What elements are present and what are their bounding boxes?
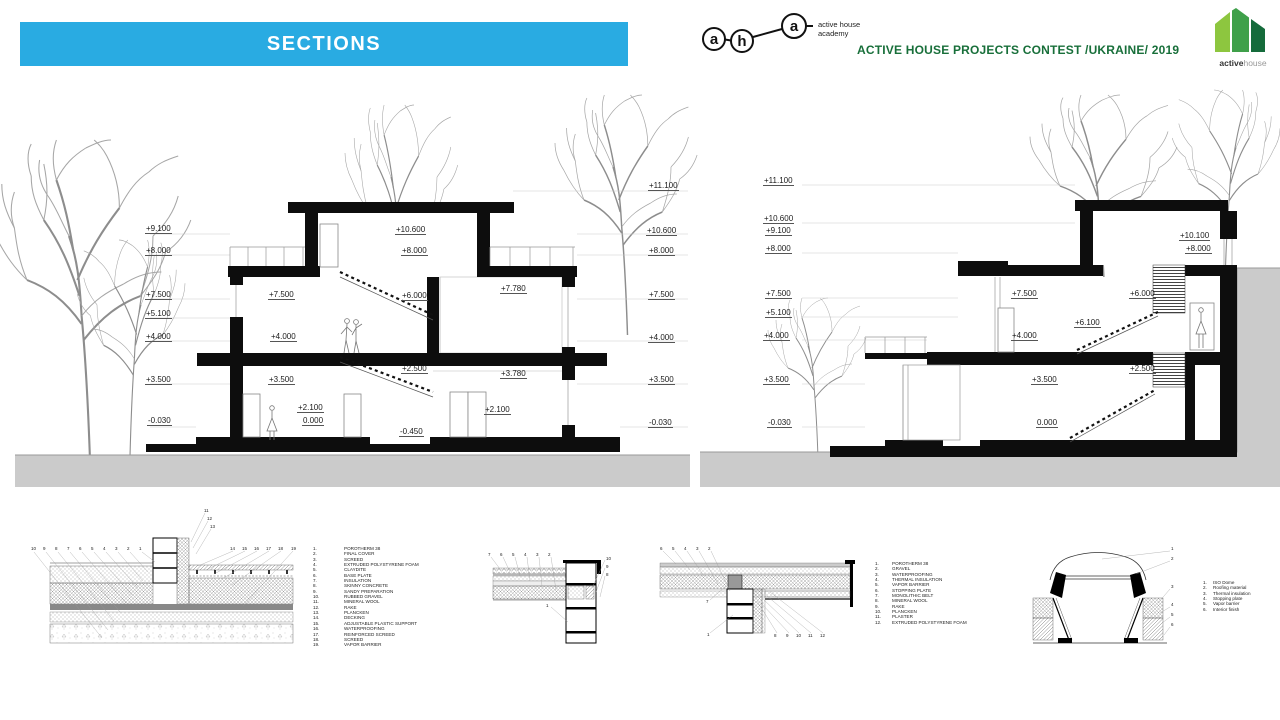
academy-line2: academy <box>818 29 860 38</box>
legend-item-text: EXTRUDED POLYSTYRENE FOAM <box>892 620 967 625</box>
legend-floor-detail: 1.POROTHERM 382.FINAL COVER3.SCREED4.EXT… <box>313 546 448 648</box>
legend-item: 12.EXTRUDED POLYSTYRENE FOAM <box>875 620 995 625</box>
legend-item-text: Interior finish <box>1213 607 1239 612</box>
logo-stripe-light <box>1215 12 1230 52</box>
academy-line1: active house <box>818 20 860 29</box>
legend-item-text: VAPOR BARRIER <box>344 642 381 647</box>
contest-title: ACTIVE HOUSE PROJECTS CONTEST /UKRAINE/ … <box>857 43 1157 57</box>
detail-parapet <box>491 557 605 643</box>
detail-roof-edge <box>660 551 855 633</box>
logo-stripe-dark <box>1251 19 1265 52</box>
logo-letter-a2: a <box>790 18 799 35</box>
logo-letter-a1: a <box>710 31 719 48</box>
slide: SECTIONS a h a active house academy ACTI… <box>0 0 1280 720</box>
legend-item: 6.Interior finish <box>1203 607 1279 612</box>
logo-stripe-mid <box>1232 8 1249 52</box>
legend-skylight-detail: 1.ISO Dome2.Roofing material3.Thermal in… <box>1203 580 1279 612</box>
legend-item: 19.VAPOR BARRIER <box>313 642 448 647</box>
right-section <box>830 200 1237 457</box>
academy-logo-text: active house academy <box>818 20 860 38</box>
activehouse-logo <box>1213 8 1273 58</box>
logo-letter-h: h <box>737 33 746 50</box>
legend-roof-detail: 1.POROTHERM 382.GRAVEL3.WATERPROOFING4.T… <box>875 561 995 625</box>
activehouse-wordmark: activehouse <box>1206 58 1280 68</box>
legend-item-number: 6. <box>1203 607 1213 612</box>
legend-item-number: 19. <box>313 642 344 647</box>
page-title: SECTIONS <box>267 33 381 56</box>
sections-drawing <box>0 0 1280 720</box>
brand-bold: active <box>1219 58 1243 68</box>
detail-skylight <box>1033 551 1170 643</box>
legend-item-number: 12. <box>875 620 892 625</box>
detail-floor-junction <box>34 513 293 643</box>
title-banner: SECTIONS <box>20 22 628 66</box>
left-section <box>146 202 620 452</box>
brand-light: house <box>1243 58 1266 68</box>
